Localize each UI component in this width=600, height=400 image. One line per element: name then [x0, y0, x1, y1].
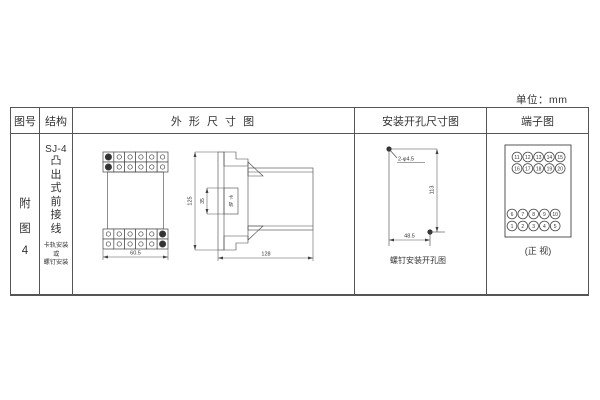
header-mounting: 安装开孔尺寸图 [355, 108, 486, 134]
mounting-cell: 2-φ4.5 113 48.5 螺钉安装开孔图 [355, 133, 486, 294]
side-bottom-cover [224, 236, 248, 250]
svg-text:8: 8 [532, 212, 535, 218]
svg-text:18: 18 [536, 166, 542, 172]
height-dim-label: 125 [188, 196, 194, 205]
col-mounting: 安装开孔尺寸图 2-φ4.5 113 48.5 螺钉安装开孔图 [355, 108, 487, 294]
svg-text:13: 13 [536, 155, 542, 161]
figure-char-1: 附 [19, 195, 31, 211]
front-terminal-block-top [103, 152, 168, 172]
mounting-caption: 螺钉安装开孔图 [390, 255, 446, 265]
figure-no-cell: 附 图 4 [11, 133, 39, 319]
datasheet-page: 单位：mm 图号 附 图 4 结构 SJ-4 凸 出 式 前 接 线 卡轨安装 [0, 0, 600, 400]
svg-text:19: 19 [547, 166, 553, 172]
svg-text:11: 11 [514, 155, 519, 161]
col-outline: 外 形 尺 寸 图 60.5 [73, 108, 355, 294]
svg-text:4: 4 [543, 224, 546, 230]
type-char: 线 [51, 223, 62, 237]
holes-label: 2-φ4.5 [398, 157, 414, 163]
depth-dim-label: 128 [261, 252, 270, 258]
svg-text:6: 6 [511, 212, 514, 218]
spec-table: 图号 附 图 4 结构 SJ-4 凸 出 式 前 接 线 卡轨安装 或 螺钉安装 [10, 107, 589, 296]
col-figure-no: 图号 附 图 4 [11, 108, 40, 294]
svg-text:16: 16 [514, 166, 520, 172]
terminal-circles: 1112131415161718192067891012345 [507, 152, 565, 231]
svg-text:3: 3 [532, 224, 535, 230]
header-terminals: 端子图 [487, 108, 588, 134]
terminal-cell: 1112131415161718192067891012345 (正 视) [487, 133, 588, 294]
rail-dim-label: 35 [200, 198, 206, 204]
outline-cell: 60.5 125 [73, 133, 354, 294]
type-char: 接 [51, 209, 62, 223]
col-structure: 结构 SJ-4 凸 出 式 前 接 线 卡轨安装 或 螺钉安装 [40, 108, 73, 294]
header-figure-no: 图号 [11, 108, 39, 134]
col-terminals: 端子图 1112131415161718192067891012345 (正 视… [487, 108, 588, 294]
front-terminal-block-bottom [103, 229, 168, 249]
unit-label: 单位：mm [516, 92, 568, 107]
type-char: 凸 [51, 155, 62, 169]
outline-drawings: 60.5 125 [73, 133, 354, 295]
side-body [248, 168, 313, 230]
side-bottom-latch [248, 226, 263, 240]
din-rail-slot [224, 188, 238, 214]
side-top-cover [224, 152, 248, 166]
svg-text:14: 14 [547, 155, 553, 161]
svg-text:1: 1 [511, 224, 514, 230]
vertical-dim-label: 113 [430, 186, 436, 195]
outline-front-view: 60.5 [103, 152, 168, 260]
mount-note-line1: 卡轨安装 [44, 242, 69, 250]
rail-label-char2: 轨 [229, 201, 234, 208]
figure-char-3: 4 [22, 245, 28, 257]
svg-text:17: 17 [525, 166, 531, 172]
type-char: 式 [51, 182, 62, 196]
type-char: 出 [51, 169, 62, 183]
mounting-hole-drawing: 2-φ4.5 113 48.5 螺钉安装开孔图 [355, 133, 486, 295]
header-structure: 结构 [40, 108, 72, 134]
svg-text:20: 20 [557, 166, 563, 172]
svg-text:5: 5 [554, 224, 557, 230]
terminal-caption: (正 视) [525, 245, 552, 256]
structure-cell: SJ-4 凸 出 式 前 接 线 卡轨安装 或 螺钉安装 [40, 133, 72, 319]
mount-note-line3: 螺钉安装 [44, 259, 69, 267]
svg-text:9: 9 [543, 212, 546, 218]
horizontal-dim-label: 48.5 [404, 234, 415, 240]
header-outline: 外 形 尺 寸 图 [73, 108, 354, 134]
figure-char-2: 图 [19, 220, 31, 236]
outline-side-view: 125 卡 轨 [188, 152, 314, 261]
svg-text:10: 10 [552, 212, 558, 218]
side-front-plate [218, 152, 224, 250]
model-label: SJ-4 [45, 144, 67, 155]
svg-text:2: 2 [521, 224, 524, 230]
terminal-diagram: 1112131415161718192067891012345 (正 视) [487, 133, 587, 295]
type-char: 前 [51, 196, 62, 210]
width-dim-label: 60.5 [130, 251, 141, 257]
mount-note-line2: 或 [53, 251, 59, 259]
rail-label-char1: 卡 [229, 194, 234, 201]
side-top-latch [248, 162, 263, 176]
front-body [108, 172, 164, 229]
svg-text:7: 7 [521, 212, 524, 218]
svg-text:15: 15 [557, 155, 563, 161]
svg-text:12: 12 [525, 155, 531, 161]
hole-leader-line [389, 149, 397, 158]
